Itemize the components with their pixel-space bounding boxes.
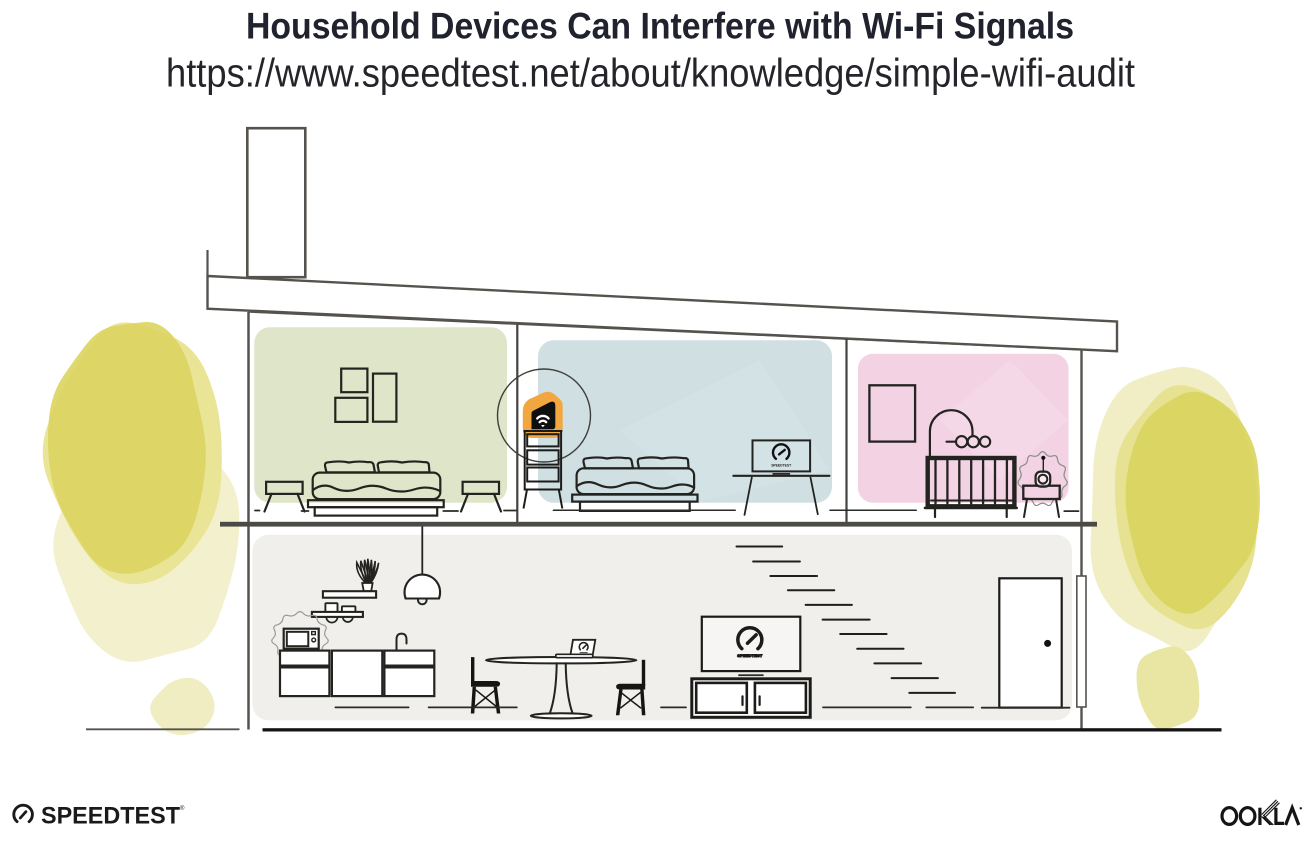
svg-text:SPEEDTEST: SPEEDTEST	[737, 653, 763, 658]
svg-text:SPEEDTEST: SPEEDTEST	[771, 463, 792, 467]
svg-text:®: ®	[180, 805, 185, 812]
svg-text:SPEEDTEST: SPEEDTEST	[41, 802, 180, 829]
svg-text:Household Devices Can Interfer: Household Devices Can Interfere with Wi-…	[246, 6, 1074, 47]
svg-text:https://www.speedtest.net/abou: https://www.speedtest.net/about/knowledg…	[166, 52, 1135, 96]
